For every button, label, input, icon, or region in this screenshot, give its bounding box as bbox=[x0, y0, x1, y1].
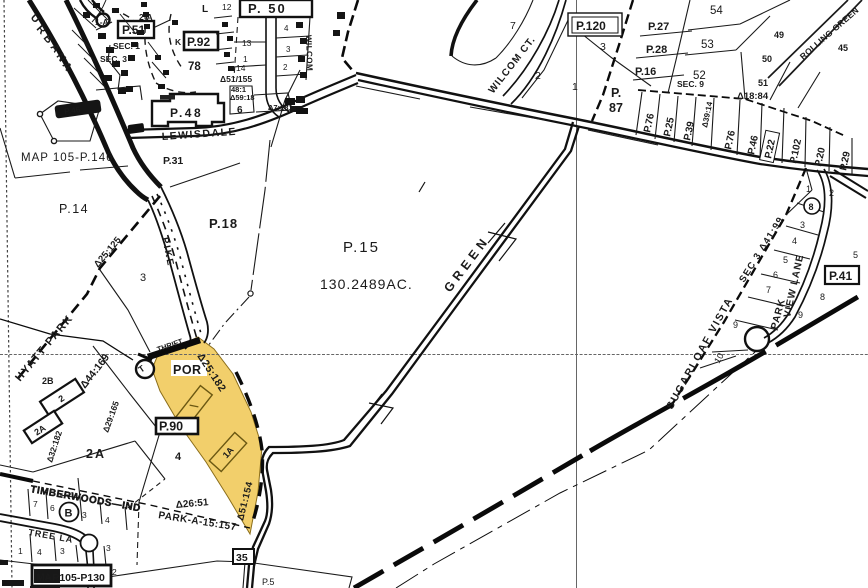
svg-text:P.15: P.15 bbox=[343, 239, 380, 256]
svg-text:L: L bbox=[202, 4, 208, 15]
svg-text:P.92: P.92 bbox=[187, 35, 210, 49]
svg-text:POR: POR bbox=[173, 363, 202, 377]
svg-text:2A: 2A bbox=[86, 447, 106, 461]
svg-text:50: 50 bbox=[762, 54, 772, 64]
svg-text:13: 13 bbox=[242, 38, 252, 48]
svg-text:SEC. 9: SEC. 9 bbox=[677, 79, 704, 89]
svg-text:1: 1 bbox=[572, 81, 578, 93]
svg-text:9: 9 bbox=[733, 320, 738, 330]
svg-text:P.48: P.48 bbox=[170, 106, 203, 120]
svg-text:7: 7 bbox=[766, 285, 771, 295]
svg-text:Δ51/155: Δ51/155 bbox=[220, 74, 252, 84]
svg-text:3: 3 bbox=[286, 45, 291, 54]
svg-text:P.41: P.41 bbox=[829, 269, 852, 283]
svg-text:1: 1 bbox=[243, 54, 248, 64]
svg-text:3: 3 bbox=[800, 220, 805, 230]
svg-text:130.2489AC.: 130.2489AC. bbox=[320, 276, 413, 292]
svg-text:4: 4 bbox=[37, 547, 42, 557]
svg-text:P.: P. bbox=[611, 86, 621, 100]
svg-text:1: 1 bbox=[18, 546, 23, 556]
svg-text:3: 3 bbox=[140, 272, 146, 284]
svg-text:K: K bbox=[175, 37, 182, 47]
svg-text:6: 6 bbox=[50, 503, 55, 513]
svg-text:Δ18:84: Δ18:84 bbox=[737, 91, 769, 102]
svg-text:8: 8 bbox=[809, 202, 814, 212]
svg-text:7: 7 bbox=[33, 499, 38, 509]
svg-text:14: 14 bbox=[236, 63, 246, 73]
svg-text:4: 4 bbox=[284, 24, 289, 33]
svg-text:2: 2 bbox=[283, 63, 288, 72]
svg-text:P.90: P.90 bbox=[159, 420, 183, 434]
svg-text:8: 8 bbox=[820, 292, 825, 302]
svg-text:49: 49 bbox=[774, 30, 784, 40]
svg-text:3: 3 bbox=[82, 510, 87, 520]
svg-text:MAP 105-P.146: MAP 105-P.146 bbox=[21, 152, 114, 164]
svg-text:2: 2 bbox=[829, 188, 834, 198]
svg-text:12: 12 bbox=[222, 2, 232, 12]
svg-text:4: 4 bbox=[105, 515, 110, 525]
svg-text:35: 35 bbox=[236, 552, 248, 564]
svg-text:3: 3 bbox=[106, 543, 111, 553]
svg-text:P. 50: P. 50 bbox=[248, 1, 287, 16]
svg-text:2B: 2B bbox=[42, 376, 54, 386]
svg-text:53: 53 bbox=[701, 39, 714, 51]
svg-text:3: 3 bbox=[600, 41, 606, 53]
svg-text:9: 9 bbox=[798, 310, 803, 320]
svg-text:2: 2 bbox=[535, 70, 541, 82]
svg-text:4: 4 bbox=[792, 236, 797, 246]
svg-text:P.31: P.31 bbox=[163, 155, 183, 167]
svg-text:3: 3 bbox=[60, 546, 65, 556]
svg-text:MA: MA bbox=[37, 572, 51, 582]
svg-text:2: 2 bbox=[112, 567, 117, 577]
svg-text:54: 54 bbox=[710, 5, 723, 17]
svg-text:Δ59:18: Δ59:18 bbox=[230, 93, 255, 102]
svg-text:P.120: P.120 bbox=[576, 19, 606, 33]
svg-text:87: 87 bbox=[609, 101, 623, 115]
svg-text:6: 6 bbox=[773, 270, 778, 280]
svg-text:4: 4 bbox=[175, 451, 182, 463]
svg-text:P.27: P.27 bbox=[648, 21, 669, 33]
svg-text:78: 78 bbox=[188, 61, 201, 73]
svg-text:5: 5 bbox=[853, 250, 858, 260]
svg-text:6: 6 bbox=[237, 105, 243, 116]
svg-text:51: 51 bbox=[758, 78, 768, 88]
svg-text:B: B bbox=[65, 508, 73, 520]
svg-text:1: 1 bbox=[806, 184, 811, 194]
svg-text:45: 45 bbox=[838, 43, 848, 53]
svg-text:P.16: P.16 bbox=[635, 66, 656, 78]
svg-text:P.28: P.28 bbox=[646, 44, 667, 56]
svg-text:P.14: P.14 bbox=[59, 202, 89, 216]
svg-text:P.18: P.18 bbox=[209, 216, 238, 231]
svg-text:5: 5 bbox=[783, 255, 788, 265]
svg-text:7: 7 bbox=[510, 20, 516, 32]
svg-text:P.5: P.5 bbox=[262, 577, 274, 587]
